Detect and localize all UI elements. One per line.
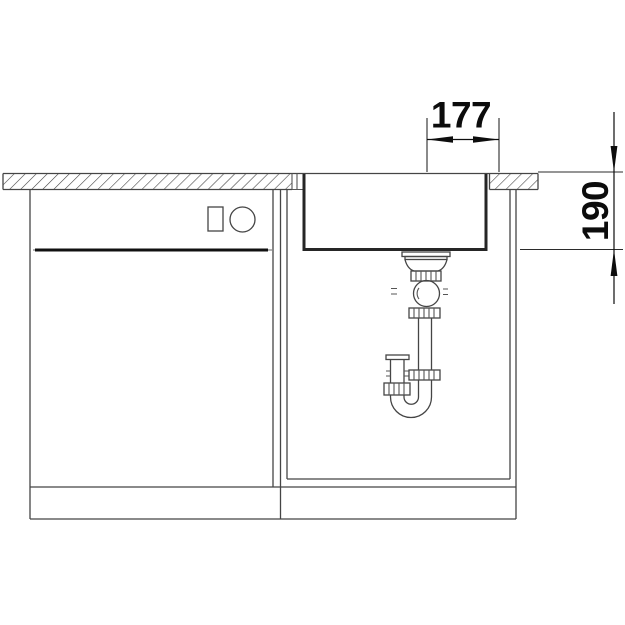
siphon-elbow	[391, 281, 448, 307]
drain-flange-plate-2	[405, 257, 447, 260]
drain-assembly	[384, 252, 450, 417]
countertop-left-slab	[3, 174, 292, 190]
siphon-nut-2	[409, 308, 440, 318]
dimension-depth-label: 190	[575, 181, 616, 241]
siphon-ubend-outer	[391, 397, 432, 417]
drain-funnel	[405, 260, 447, 272]
arrow-down-icon	[611, 146, 618, 172]
dimension-width-label: 177	[431, 95, 491, 136]
dimension-width: 177	[427, 95, 499, 173]
sink-bowl	[304, 174, 486, 250]
knob-circle-symbol	[230, 207, 255, 232]
siphon-ubend-inner	[404, 397, 419, 404]
countertop-right-slab	[490, 174, 539, 190]
sink-bowl-outline	[304, 174, 486, 250]
cabinet-left	[30, 190, 273, 519]
arrow-left-icon	[427, 136, 453, 143]
siphon-nut-3	[409, 370, 440, 380]
countertop	[3, 174, 538, 190]
sink-rim-left	[292, 174, 304, 190]
siphon-nut-4	[384, 383, 410, 395]
handle-rect-symbol	[208, 207, 223, 231]
plinth	[30, 487, 516, 519]
installation-drawing: 177 190	[0, 0, 625, 625]
dimension-depth: 190	[520, 112, 623, 304]
sink-installation-diagram: 177 190	[0, 0, 625, 625]
siphon-nut-1	[411, 271, 441, 281]
cabinet-inner-lining	[287, 190, 510, 479]
arrow-up-icon	[611, 250, 618, 277]
arrow-right-icon	[473, 136, 499, 143]
drain-flange-plate	[402, 252, 450, 257]
siphon-pipe-right	[419, 318, 432, 397]
